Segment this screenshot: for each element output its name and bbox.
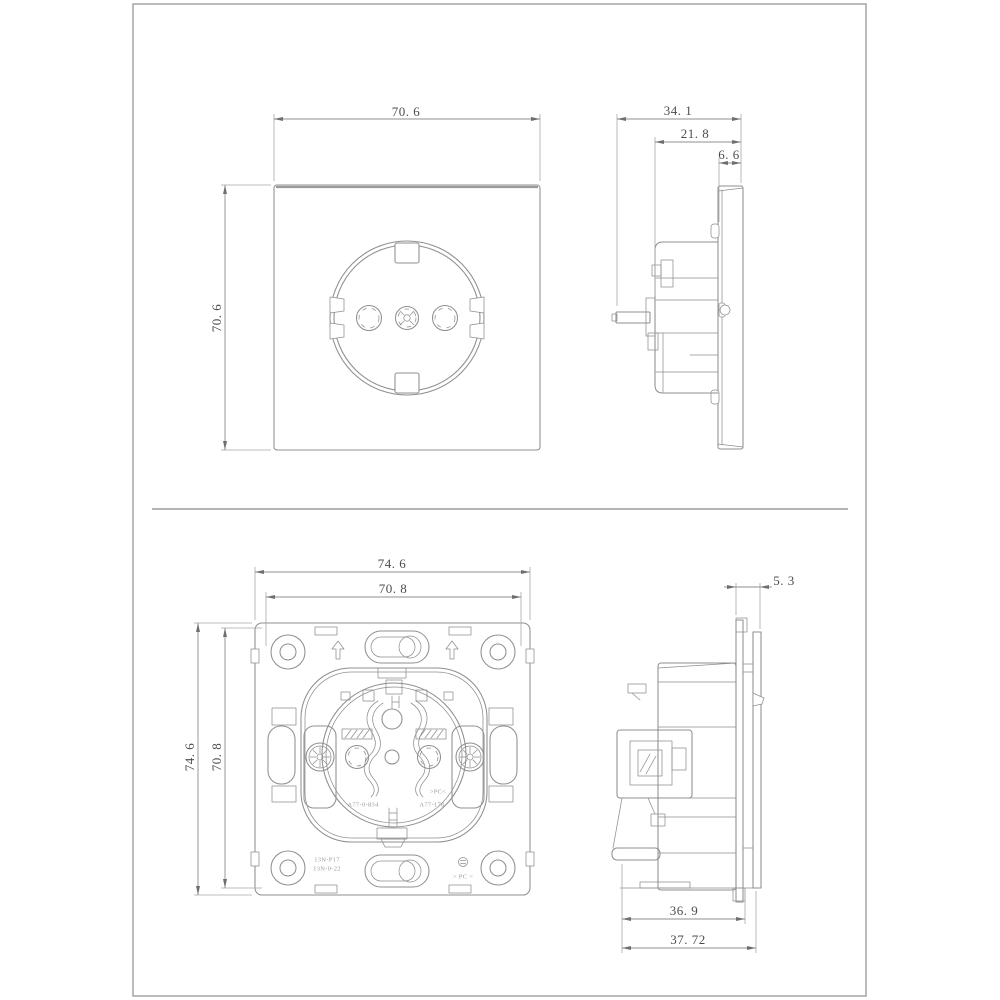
- dim-side-total-depth-label: 34. 1: [664, 103, 693, 119]
- dim-side-body-depth-label: 21. 8: [681, 126, 710, 142]
- pin-hole-right: [433, 306, 458, 331]
- frame-plate-profile: [736, 620, 743, 902]
- mechanism-body-side: [658, 663, 736, 890]
- mounting-slot-top: [365, 631, 429, 663]
- part-number-left-label: A77-0-834: [347, 802, 378, 809]
- drawing-canvas: 70. 6 70. 6 34. 1 21. 8 6. 6 74. 6 70. 8…: [0, 0, 1000, 1000]
- material-mark-bottom-label: > PC <: [453, 874, 473, 881]
- spring-bar-right: [416, 729, 446, 739]
- dim-back-outer-height-label: 74. 6: [182, 743, 198, 772]
- spring-bar-left: [342, 729, 372, 739]
- dim-total-depth-label: 37. 72: [670, 932, 706, 948]
- mounting-slot-bottom: [365, 855, 429, 887]
- dim-front-height-label: 70. 6: [209, 304, 225, 333]
- dim-back-outer-width-label: 74. 6: [378, 556, 407, 572]
- material-mark-inner-label: >PC<: [430, 789, 446, 796]
- dimension-annotations: [194, 114, 772, 953]
- up-arrow-right: [446, 641, 458, 659]
- technical-drawing: [0, 0, 1000, 1000]
- center-screw: [396, 307, 419, 330]
- side-slot-left: [268, 708, 296, 802]
- dim-front-width-label: 70. 6: [392, 104, 421, 120]
- earth-clip-notch-top: [395, 243, 419, 263]
- front-view: [274, 185, 540, 450]
- dim-back-inner-width-label: 70. 8: [379, 581, 408, 597]
- dim-rear-depth-label: 5. 3: [773, 573, 795, 589]
- side-slot-right: [489, 708, 517, 802]
- material-circle-mark: [459, 858, 468, 867]
- plaster-claw-tooth: [753, 693, 764, 706]
- up-arrow-left: [332, 641, 344, 659]
- earth-clip-notch-bottom: [395, 373, 419, 393]
- dim-depth-to-claw-label: 36. 9: [670, 903, 699, 919]
- dim-side-plate-thickness-label: 6. 6: [718, 147, 740, 163]
- claw-housing: [617, 730, 692, 798]
- terminal-left: [346, 746, 369, 769]
- pin-hole-left: [357, 306, 382, 331]
- support-claw: [612, 298, 655, 336]
- page-border: [133, 4, 866, 996]
- terminal-right: [418, 746, 441, 769]
- back-view: [251, 623, 534, 895]
- mold-code-line2-label: 13N-0-22: [313, 866, 341, 873]
- part-number-right-label: A77-178: [419, 802, 444, 809]
- side-view-top: [612, 186, 743, 449]
- claw-screw-left: [306, 743, 334, 771]
- support-claw-arm: [612, 848, 660, 860]
- claw-screw-right: [456, 743, 484, 771]
- side-view-bottom: [612, 618, 764, 902]
- mechanism-body-profile: [655, 242, 718, 393]
- dim-back-inner-height-label: 70. 8: [209, 743, 225, 772]
- corner-screw-bosses: [271, 635, 515, 885]
- mold-code-line1-label: 13N-P17: [314, 857, 340, 864]
